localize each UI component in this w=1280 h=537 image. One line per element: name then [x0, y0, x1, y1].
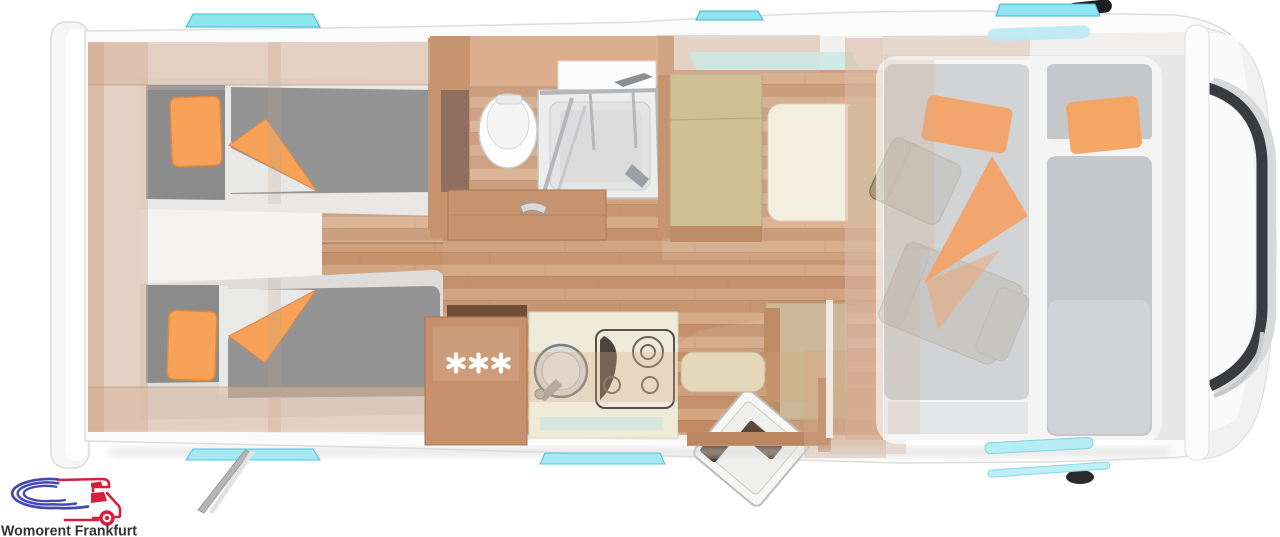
svg-text:Womorent Frankfurt: Womorent Frankfurt	[1, 524, 137, 537]
